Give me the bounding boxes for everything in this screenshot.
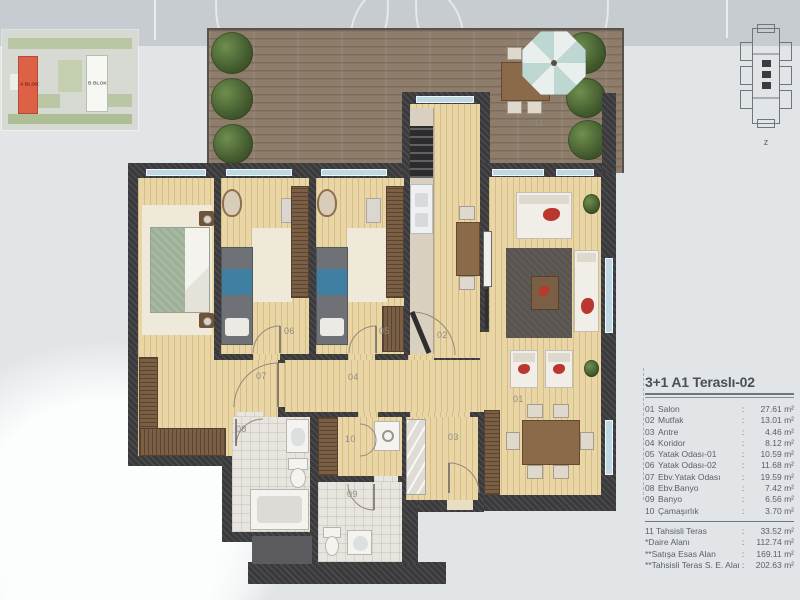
label-teras: 11 bbox=[534, 118, 544, 128]
site-block-b-label: B BLOK bbox=[88, 80, 107, 86]
site-block-a-label: A BLOK bbox=[20, 81, 39, 87]
door-gap bbox=[374, 476, 398, 482]
terrace-bush bbox=[211, 78, 253, 120]
bedroom2-rug bbox=[252, 228, 292, 302]
dining-chair bbox=[553, 404, 569, 418]
site-plan: A BLOK B BLOK bbox=[2, 30, 138, 130]
legend-divider bbox=[645, 521, 794, 522]
terrace-bush bbox=[213, 124, 253, 164]
label-ebv-yatak: 07 bbox=[256, 371, 267, 381]
door-gap bbox=[236, 412, 264, 417]
sink-basin bbox=[353, 536, 368, 551]
door-gap bbox=[348, 354, 375, 360]
window bbox=[605, 258, 613, 333]
legend-rule bbox=[645, 393, 794, 398]
legend-room-list: 01Salon:27.61 m² 02Mutfak:13.01 m² 03Ant… bbox=[645, 404, 794, 517]
antre-closet bbox=[406, 419, 426, 495]
window bbox=[226, 169, 292, 176]
door-gap bbox=[253, 354, 280, 360]
label-mutfak: 02 bbox=[437, 330, 448, 340]
legend-row: 07Ebv.Yatak Odası:19.59 m² bbox=[645, 472, 794, 483]
kitchen-sink bbox=[410, 184, 433, 234]
window bbox=[416, 96, 474, 103]
bedroom1-armchair bbox=[317, 189, 337, 217]
sliding-door-panel bbox=[483, 231, 492, 287]
exterior-step bbox=[252, 536, 312, 564]
label-salon: 01 bbox=[513, 394, 524, 404]
label-koridor: 04 bbox=[348, 372, 359, 382]
label-yatak2: 06 bbox=[284, 326, 295, 336]
label-antre: 03 bbox=[448, 432, 459, 442]
bedroom1-wardrobe bbox=[386, 186, 404, 298]
laundry-shelf bbox=[318, 417, 338, 476]
washer-door bbox=[382, 430, 394, 442]
balcony-railing-mark bbox=[643, 368, 644, 500]
legend-summary-row: **Tahsisli Teras S. E. Alan:202.63 m² bbox=[645, 560, 794, 571]
bed-pillow bbox=[225, 318, 249, 336]
bathtub-inner bbox=[257, 496, 302, 523]
lamp bbox=[203, 215, 212, 224]
vanity-basin bbox=[291, 428, 305, 446]
site-green-patch bbox=[58, 60, 82, 92]
legend-summary-row: **Satışa Esas Alan:169.11 m² bbox=[645, 549, 794, 560]
terrace-bush bbox=[211, 32, 253, 74]
door-gap bbox=[410, 412, 470, 417]
toilet-bowl bbox=[325, 536, 339, 556]
living-plant bbox=[583, 194, 600, 214]
living-opening bbox=[480, 332, 490, 412]
bath-vanity bbox=[286, 419, 309, 453]
wall-terrace-stub bbox=[602, 93, 616, 173]
bed-throw bbox=[317, 269, 347, 295]
legend-row: 02Mutfak:13.01 m² bbox=[645, 415, 794, 426]
site-block-b: B BLOK bbox=[86, 55, 108, 112]
master-wardrobe bbox=[139, 428, 226, 456]
toilet-bowl bbox=[290, 468, 306, 488]
site-green-patch bbox=[104, 94, 132, 107]
kitchen-oven bbox=[410, 126, 433, 178]
bed-throw bbox=[222, 269, 252, 295]
dining-table bbox=[522, 420, 580, 465]
washing-machine bbox=[374, 421, 400, 451]
bedroom2-armchair bbox=[222, 189, 242, 217]
window bbox=[492, 169, 544, 176]
site-green-strip bbox=[8, 38, 132, 49]
window bbox=[605, 420, 613, 475]
master-bed bbox=[150, 227, 210, 313]
key-plan-drawing bbox=[738, 24, 794, 128]
living-sofa-east bbox=[574, 250, 599, 332]
legend-row: 06Yatak Odası-02:11.68 m² bbox=[645, 460, 794, 471]
sink-basin bbox=[415, 193, 428, 207]
bedroom2-bed bbox=[221, 247, 253, 345]
decor-line bbox=[726, 0, 728, 38]
label-yatak1: 05 bbox=[379, 326, 390, 336]
legend-row: 05Yatak Odası-01:10.59 m² bbox=[645, 449, 794, 460]
kitchen-chair bbox=[459, 206, 475, 220]
legend-summary: 11 Tahsisli Teras:33.52 m² *Daire Alanı:… bbox=[645, 526, 794, 571]
decor-line bbox=[154, 0, 156, 40]
dining-chair bbox=[553, 465, 569, 479]
bed-pillow bbox=[320, 318, 344, 336]
site-block-a: A BLOK bbox=[18, 56, 38, 114]
entry-platform bbox=[248, 562, 446, 584]
bed-sheet bbox=[185, 228, 209, 312]
door-gap bbox=[278, 363, 285, 407]
terrace-chair bbox=[527, 101, 542, 114]
sink-basin bbox=[415, 213, 428, 227]
window bbox=[146, 169, 206, 176]
parasol-pole bbox=[551, 60, 557, 66]
legend-row: 04Koridor:8.12 m² bbox=[645, 438, 794, 449]
label-camasirlik: 10 bbox=[345, 434, 356, 444]
terrace-chair bbox=[507, 47, 522, 60]
bath-sink bbox=[347, 530, 372, 555]
bedroom1-rug bbox=[347, 228, 387, 302]
dining-chair bbox=[527, 404, 543, 418]
legend-row: 09Banyo:6.56 m² bbox=[645, 494, 794, 505]
legend-summary-row: 11 Tahsisli Teras:33.52 m² bbox=[645, 526, 794, 537]
living-plant bbox=[584, 360, 599, 377]
lamp bbox=[203, 317, 212, 326]
dining-chair bbox=[506, 432, 520, 450]
floorplan-page: A BLOK B BLOK z bbox=[0, 0, 800, 600]
window bbox=[321, 169, 387, 176]
dining-chair bbox=[580, 432, 594, 450]
legend-row: 08Ebv.Banyo:7.42 m² bbox=[645, 483, 794, 494]
key-plan: z bbox=[737, 24, 795, 146]
room-corridor bbox=[285, 360, 489, 412]
wall-stub-entry bbox=[402, 500, 418, 564]
window bbox=[556, 169, 594, 176]
label-ebv-banyo: 08 bbox=[236, 424, 247, 434]
site-green-strip bbox=[8, 114, 132, 124]
sliding-door-track bbox=[485, 289, 488, 329]
legend-row: 10Çamaşırlık:3.70 m² bbox=[645, 506, 794, 517]
dining-sideboard bbox=[484, 410, 500, 495]
plan-title: 3+1 A1 Teraslı-02 bbox=[645, 374, 794, 390]
legend: 3+1 A1 Teraslı-02 01Salon:27.61 m² 02Mut… bbox=[645, 374, 794, 571]
legend-row: 03Antre:4.46 m² bbox=[645, 427, 794, 438]
bedroom1-bed bbox=[316, 247, 348, 345]
key-plan-label: z bbox=[737, 137, 795, 147]
entrance-door-gap bbox=[447, 500, 473, 510]
legend-summary-row: *Daire Alanı:112.74 m² bbox=[645, 537, 794, 548]
terrace-chair bbox=[507, 101, 522, 114]
kitchen-table bbox=[456, 222, 480, 276]
door-gap bbox=[408, 355, 434, 360]
bedroom1-desk bbox=[366, 198, 381, 223]
label-banyo: 09 bbox=[347, 489, 358, 499]
dining-chair bbox=[527, 465, 543, 479]
bedroom2-wardrobe bbox=[291, 186, 309, 298]
bathtub bbox=[250, 489, 309, 530]
bed-blanket bbox=[151, 228, 185, 312]
kitchen-chair bbox=[459, 276, 475, 290]
legend-row: 01Salon:27.61 m² bbox=[645, 404, 794, 415]
door-gap bbox=[358, 412, 378, 417]
